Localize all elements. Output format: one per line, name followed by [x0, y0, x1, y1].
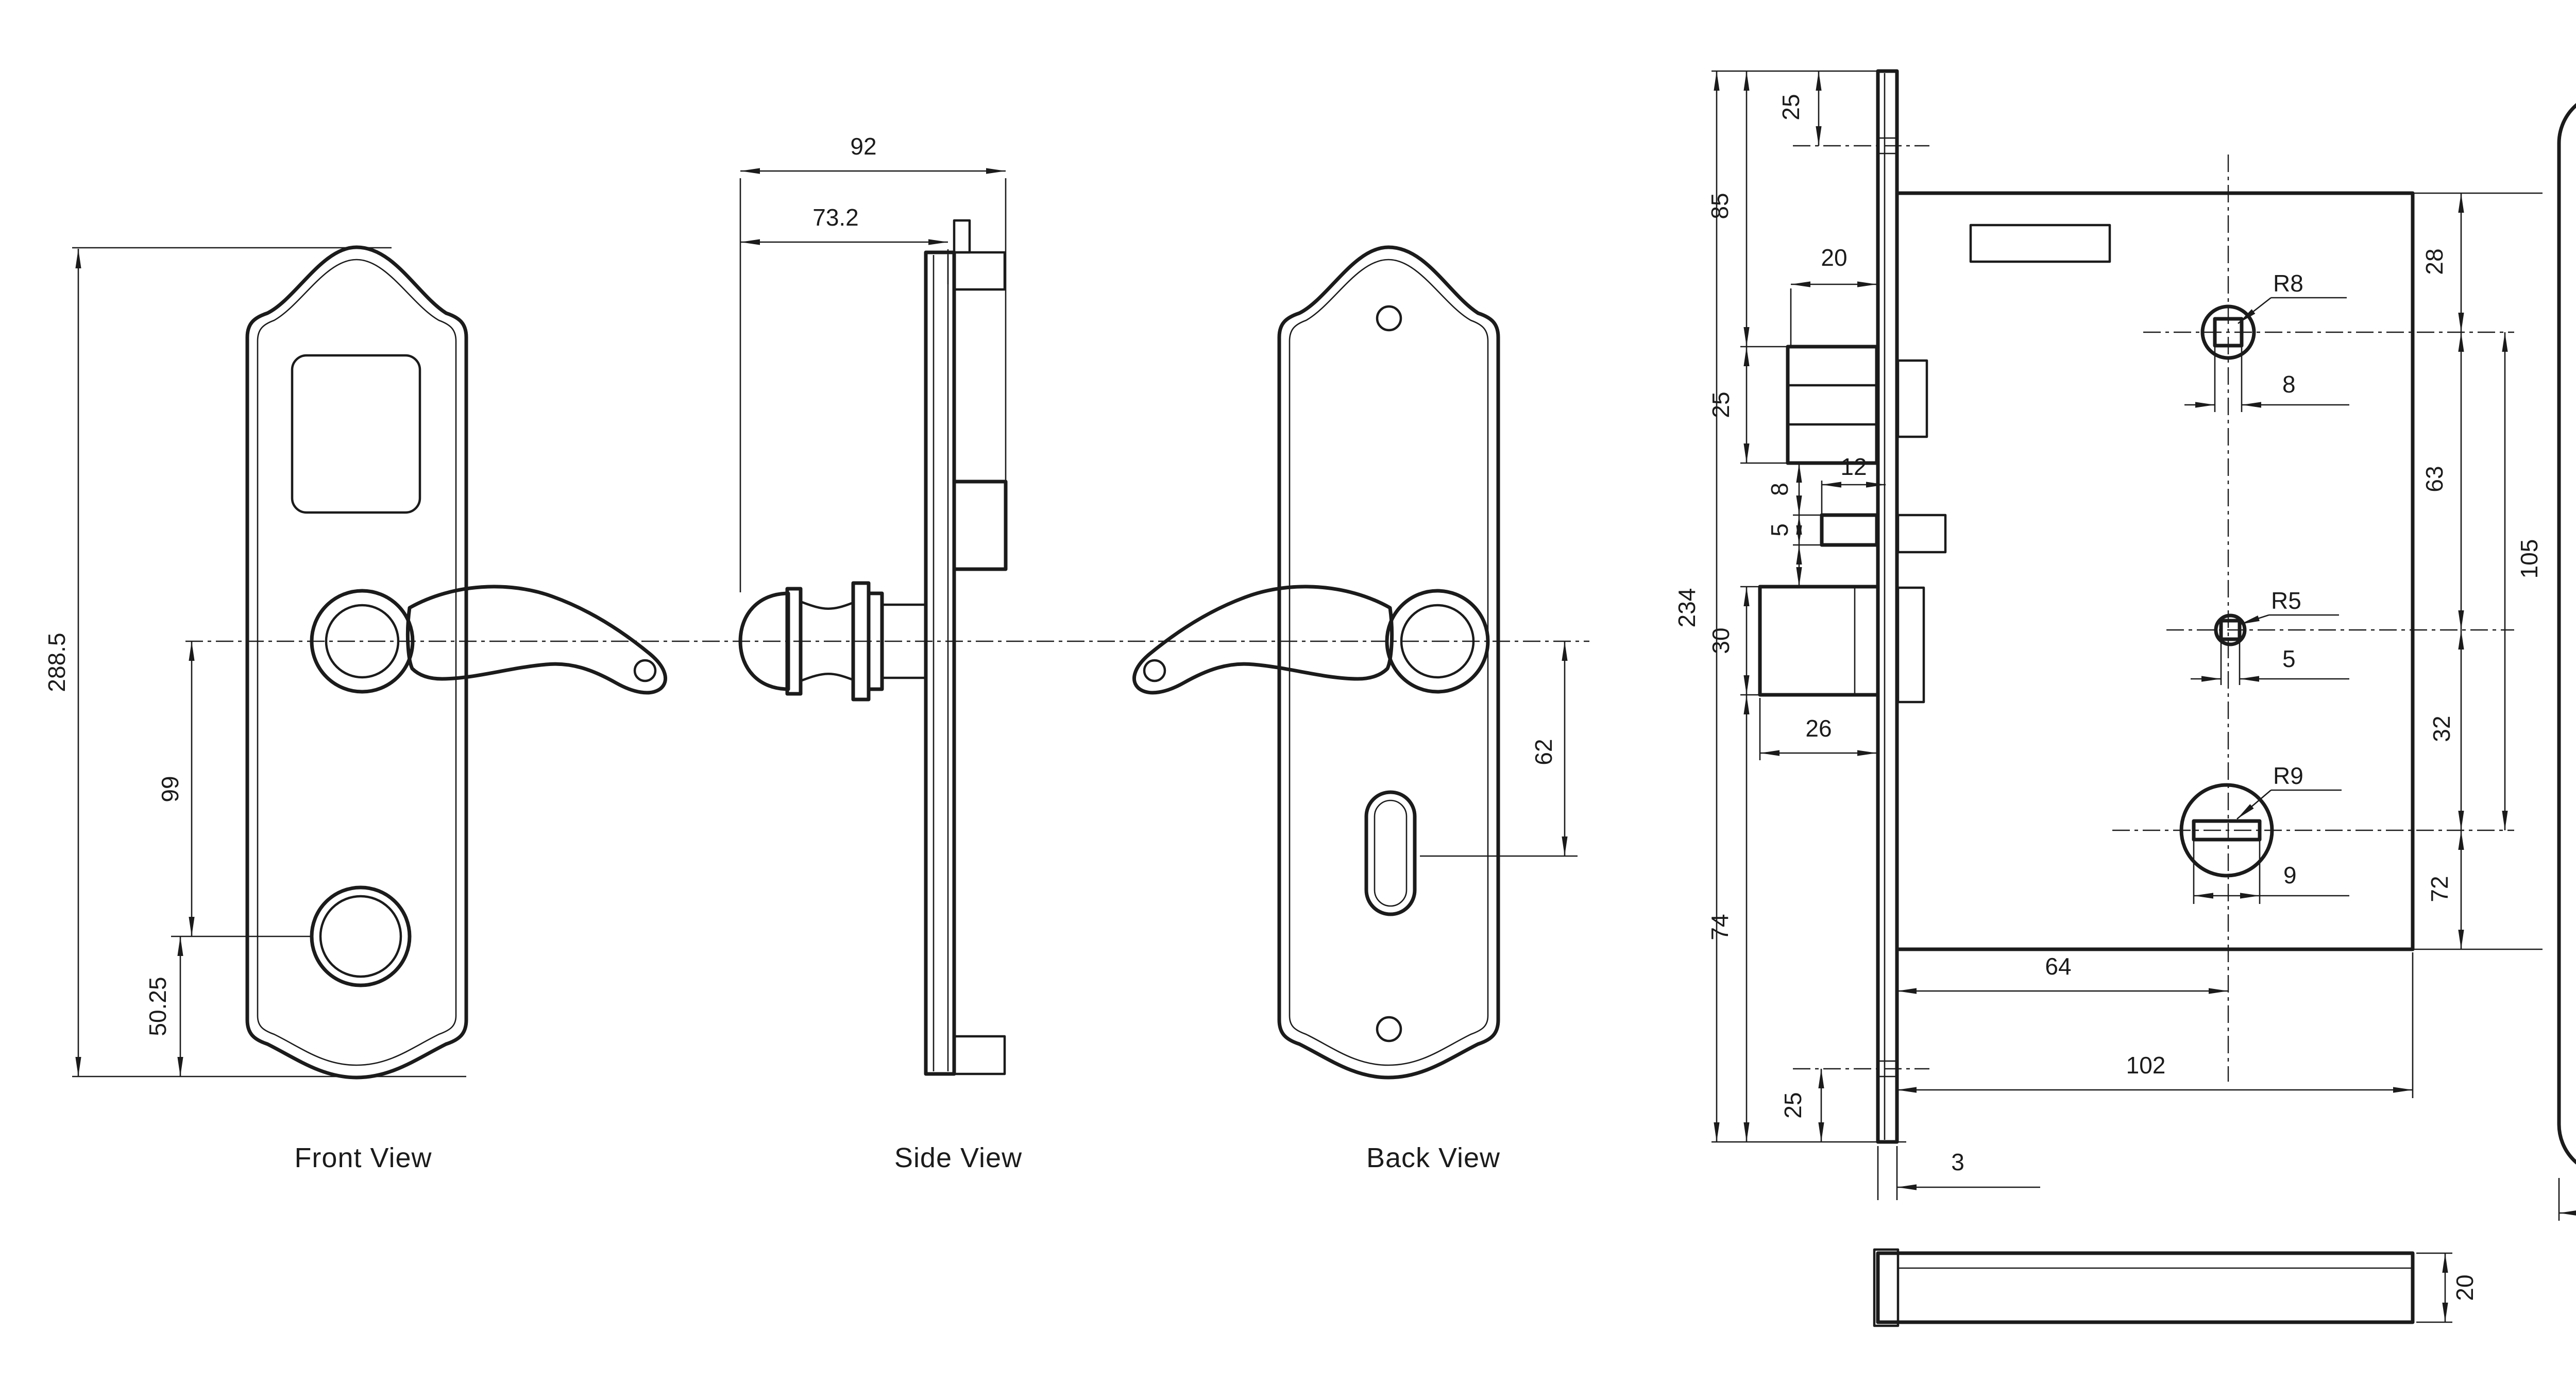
- strike-plate-outline: [2559, 93, 2576, 1175]
- dim-spindle-to-cylinder: 32: [2428, 715, 2455, 742]
- label-follower-radius: R8: [2273, 270, 2303, 297]
- dim-top-to-screw: 25: [1777, 94, 1804, 120]
- dim-faceplate-thickness: 3: [1951, 1149, 1964, 1175]
- dim-side-total-depth: 92: [850, 133, 876, 160]
- dim-side-handle-depth: 73.2: [812, 204, 859, 231]
- dim-case-length: 102: [2126, 1052, 2166, 1079]
- dim-deadbolt-to-bottom: 74: [1706, 914, 1733, 940]
- dim-latch-protrusion: 20: [1821, 244, 1847, 271]
- side-bottom-flange: [954, 1036, 1005, 1074]
- dim-spindle-square: 5: [2282, 645, 2296, 672]
- dim-backset: 64: [2045, 953, 2071, 980]
- side-top-flange: [954, 252, 1005, 289]
- keyhole-outline: [1366, 792, 1415, 914]
- side-view-label: Side View: [894, 1142, 1022, 1173]
- card-reader-window: [292, 355, 420, 512]
- cylinder-knob: [312, 887, 410, 985]
- dim-follower-to-spindle: 63: [2421, 466, 2448, 492]
- dim-top-to-latch: 85: [1706, 193, 1733, 219]
- side-knob-neck-bottom: [801, 674, 853, 681]
- label-spindle-radius: R5: [2271, 587, 2301, 614]
- lock-assembly: 234 85 25 30 74 8 5 25 25 20 12 26: [1673, 71, 2543, 1326]
- cylinder-knob-inner: [320, 896, 401, 977]
- front-view: 288.5 99 50.25 Front View: [43, 247, 666, 1173]
- lock-faceplate: [1878, 71, 1897, 1142]
- deadbolt: [1760, 587, 1878, 695]
- back-view: 62 Back View: [1134, 247, 1578, 1173]
- dim-latch-height: 25: [1707, 391, 1734, 418]
- front-lever-scroll: [635, 660, 655, 681]
- side-view: 92 73.2 Side View: [740, 133, 1022, 1173]
- front-plate-outline: [247, 247, 466, 1078]
- front-view-label: Front View: [294, 1142, 432, 1173]
- case-edge-view: [1878, 1253, 2413, 1322]
- back-top-screw-hole: [1377, 306, 1401, 330]
- dim-lock-total-height: 234: [1673, 588, 1700, 628]
- dim-case-top-to-follower: 28: [2421, 248, 2448, 275]
- dim-bottom-to-screw: 25: [1780, 1092, 1806, 1118]
- strike-plate: R11 15 15 10 22: [2559, 50, 2576, 1221]
- label-cylinder-radius: R9: [2273, 762, 2303, 789]
- front-plate-inner-outline: [258, 260, 456, 1065]
- lock-case: [1897, 193, 2413, 949]
- dim-back-handle-to-keyhole: 62: [1530, 739, 1557, 765]
- pin-tail: [1898, 515, 1945, 552]
- deadbolt-tail: [1898, 588, 1924, 702]
- dim-case-thickness: 20: [2451, 1274, 2478, 1301]
- dim-pin-height: 5: [1766, 523, 1793, 537]
- side-plate-profile: [926, 252, 954, 1074]
- dim-deadbolt-width: 26: [1805, 715, 1832, 742]
- dim-pin-width: 12: [1840, 453, 1867, 480]
- side-top-tab: [954, 220, 970, 252]
- dim-cylinder-slot: 9: [2283, 862, 2297, 889]
- side-knob-neck-top: [801, 602, 853, 609]
- dim-follower-square: 8: [2282, 371, 2296, 398]
- dim-follower-to-cylinder: 105: [2516, 539, 2543, 579]
- deadlatch-pin: [1822, 515, 1877, 545]
- dim-deadbolt-height: 30: [1707, 627, 1734, 654]
- case-top-cutout: [1971, 225, 2110, 262]
- dim-front-cylinder-to-bottom: 50.25: [144, 977, 171, 1036]
- dim-cylinder-to-case-bottom: 72: [2426, 876, 2453, 902]
- latch-bolt: [1788, 347, 1877, 463]
- side-hub-housing: [954, 482, 1006, 569]
- dim-front-overall-height: 288.5: [43, 633, 70, 692]
- dim-front-handle-to-cylinder: 99: [157, 776, 183, 802]
- back-view-label: Back View: [1366, 1142, 1500, 1173]
- dim-latch-to-pin: 8: [1766, 483, 1793, 496]
- latch-tail: [1898, 361, 1927, 437]
- front-lever-handle: [408, 587, 665, 693]
- lock-technical-drawing: 288.5 99 50.25 Front View 92 73.2 Side V…: [0, 0, 2576, 1384]
- back-lever-handle: [1134, 587, 1392, 693]
- back-bottom-screw-hole: [1377, 1017, 1401, 1041]
- keyhole-inner: [1375, 800, 1406, 906]
- back-lever-scroll: [1144, 660, 1165, 681]
